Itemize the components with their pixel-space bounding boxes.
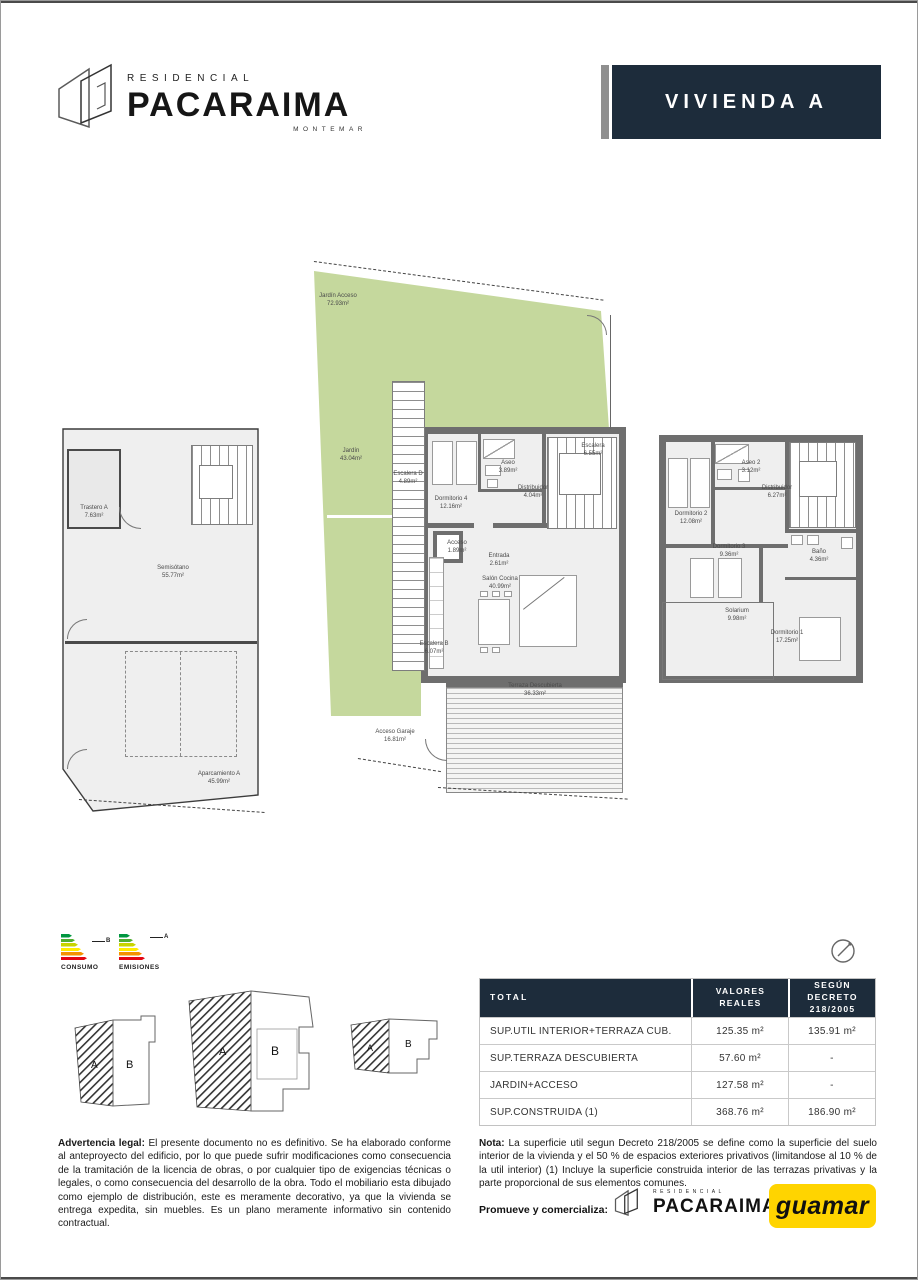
room-label-aseo-2: Aseo 23.12m² bbox=[742, 460, 761, 476]
pacaraima-logo-icon bbox=[613, 1185, 649, 1221]
room-area: 12.08m² bbox=[675, 519, 708, 527]
row-value-decreto: 186.90 m² bbox=[788, 1098, 875, 1125]
row-label: SUP.TERRAZA DESCUBIERTA bbox=[480, 1044, 691, 1071]
furniture-bed bbox=[456, 441, 477, 485]
room-name: Escalera bbox=[581, 443, 604, 451]
brand-residencial: RESIDENCIAL bbox=[127, 73, 367, 84]
room-area: 9.98m² bbox=[725, 616, 749, 624]
energy-bar-c bbox=[119, 943, 136, 947]
room-name: Salón Cocina bbox=[482, 576, 518, 584]
north-arrow-icon bbox=[829, 937, 857, 965]
keyplan-zone-a-label: A bbox=[219, 1046, 227, 1058]
room-label-terraza: Terraza Descubierta36.33m² bbox=[508, 683, 562, 699]
room-area: 4.04m² bbox=[518, 493, 548, 501]
room-name: Terraza Descubierta bbox=[508, 683, 562, 691]
room-name: Distribuidor bbox=[518, 485, 548, 493]
furniture-sofa bbox=[519, 575, 577, 647]
energy-bar-f bbox=[119, 957, 145, 961]
furniture-chair bbox=[480, 647, 488, 653]
room-area: 16.81m² bbox=[375, 737, 414, 745]
room-label-acceso: Acceso1.89m² bbox=[447, 540, 467, 556]
table-row: SUP.UTIL INTERIOR+TERRAZA CUB. 125.35 m²… bbox=[480, 1017, 875, 1044]
row-label: SUP.UTIL INTERIOR+TERRAZA CUB. bbox=[480, 1017, 691, 1044]
parking-divider bbox=[180, 652, 182, 756]
wall bbox=[542, 434, 546, 528]
room-area: 17.25m² bbox=[771, 638, 804, 646]
row-label: JARDIN+ACCESO bbox=[480, 1071, 691, 1098]
room-name: Jardín Acceso bbox=[319, 293, 357, 301]
table-row: SUP.TERRAZA DESCUBIERTA 57.60 m² - bbox=[480, 1044, 875, 1071]
keyplan-basement: A B bbox=[71, 1014, 161, 1114]
room-area: 7.63m² bbox=[80, 513, 107, 521]
legal-disclaimer: Advertencia legal: El presente documento… bbox=[58, 1137, 451, 1231]
table-header-row: TOTAL VALORES REALES SEGÚN DECRETO 218/2… bbox=[480, 979, 875, 1017]
furniture-chair bbox=[504, 591, 512, 597]
energy-chart-title: EMISIONES bbox=[119, 964, 177, 971]
energy-bar-e bbox=[119, 952, 142, 956]
wall bbox=[428, 523, 474, 528]
energy-chart-emisiones: A EMISIONES bbox=[119, 934, 177, 971]
title-accent-bar bbox=[601, 65, 609, 139]
nota-lead: Nota: bbox=[479, 1138, 505, 1149]
keyplan-zone-b-label: B bbox=[126, 1059, 133, 1071]
keyplan-zone-a-label: A bbox=[91, 1060, 98, 1071]
page-bottom-edge bbox=[1, 1277, 917, 1279]
guamar-logo: guamar bbox=[769, 1184, 876, 1228]
room-label-distribuidor: Distribuidor4.04m² bbox=[518, 485, 548, 501]
room-label-escalera-d: Escalera D4.89m² bbox=[393, 471, 422, 487]
energy-bar-c bbox=[61, 943, 78, 947]
brand-montemar: MONTEMAR bbox=[127, 126, 367, 133]
room-name: Acceso Garaje bbox=[375, 729, 414, 737]
room-name: Dormitorio 2 bbox=[675, 511, 708, 519]
room-label-aparcamiento: Aparcamiento A45.99m² bbox=[198, 771, 240, 787]
row-value-decreto: - bbox=[788, 1044, 875, 1071]
furniture-bed bbox=[718, 558, 742, 598]
room-area: 55.77m² bbox=[157, 573, 189, 581]
room-label-dormitorio-3: Dormitorio 39.36m² bbox=[713, 544, 746, 560]
furniture-toilet bbox=[841, 537, 853, 549]
keyplan-ground: A B bbox=[187, 989, 319, 1119]
unit-title: VIVIENDA A bbox=[665, 91, 828, 114]
legal-body: El presente documento no es definitivo. … bbox=[58, 1138, 451, 1229]
wall bbox=[65, 641, 257, 644]
room-area: 12.16m² bbox=[435, 504, 468, 512]
energy-chart-consumo: B CONSUMO bbox=[61, 934, 119, 971]
room-area: 36.33m² bbox=[508, 691, 562, 699]
plot-edge-line bbox=[610, 315, 611, 429]
nota-decreto: Nota: La superficie util segun Decreto 2… bbox=[479, 1137, 877, 1191]
furniture-sink bbox=[791, 535, 803, 545]
brochure-page: RESIDENCIAL PACARAIMA MONTEMAR VIVIENDA … bbox=[0, 0, 918, 1280]
footer-brand-texts: RESIDENCIAL PACARAIMA bbox=[653, 1189, 777, 1218]
energy-bar-d bbox=[61, 948, 81, 952]
terrace-deck bbox=[446, 687, 623, 793]
room-name: Jardín bbox=[340, 448, 362, 456]
room-name: Aparcamiento A bbox=[198, 771, 240, 779]
keyplan-zone-a-label: A bbox=[367, 1043, 373, 1053]
row-value-real: 368.76 m² bbox=[691, 1098, 788, 1125]
room-name: Distribuidor bbox=[762, 485, 792, 493]
basement-stairs-landing bbox=[199, 465, 233, 499]
room-label-escalera: Escalera6.55m² bbox=[581, 443, 604, 459]
room-area: 2.61m² bbox=[488, 561, 509, 569]
brand-name: PACARAIMA bbox=[127, 86, 367, 125]
room-name: Dormitorio 4 bbox=[435, 496, 468, 504]
room-name: Escalera D bbox=[393, 471, 422, 479]
row-value-decreto: 135.91 m² bbox=[788, 1017, 875, 1044]
energy-bar-e bbox=[61, 952, 84, 956]
furniture-chair bbox=[492, 647, 500, 653]
room-label-dormitorio-4: Dormitorio 412.16m² bbox=[435, 496, 468, 512]
upper-stairs-landing bbox=[799, 461, 837, 497]
furniture-chair bbox=[492, 591, 500, 597]
furniture-bed bbox=[690, 558, 714, 598]
brand-block: RESIDENCIAL PACARAIMA MONTEMAR bbox=[127, 73, 367, 133]
furniture-sink bbox=[807, 535, 819, 545]
energy-bar-b bbox=[119, 939, 133, 943]
room-label-trastero: Trastero A7.63m² bbox=[80, 505, 107, 521]
room-label-dormitorio-2: Dormitorio 212.08m² bbox=[675, 511, 708, 527]
table-row: SUP.CONSTRUIDA (1) 368.76 m² 186.90 m² bbox=[480, 1098, 875, 1125]
room-label-aseo: Aseo3.89m² bbox=[499, 460, 518, 476]
room-name: Baño bbox=[810, 549, 829, 557]
furniture-bed bbox=[690, 458, 710, 508]
energy-chart-title: CONSUMO bbox=[61, 964, 119, 971]
rating-letter: B bbox=[106, 938, 110, 944]
room-area: 6.07m² bbox=[419, 649, 448, 657]
room-area: 1.89m² bbox=[447, 548, 467, 556]
room-name: Aseo 2 bbox=[742, 460, 761, 468]
energy-rating-pointer: B bbox=[92, 938, 110, 944]
row-value-decreto: - bbox=[788, 1071, 875, 1098]
room-name: Entrada bbox=[488, 553, 509, 561]
room-area: 40.99m² bbox=[482, 584, 518, 592]
legal-lead: Advertencia legal: bbox=[58, 1138, 145, 1149]
solarium-deck bbox=[662, 602, 774, 680]
table-header-total: TOTAL bbox=[480, 979, 691, 1017]
garage-door-arc bbox=[425, 739, 447, 761]
furniture-bed bbox=[432, 441, 453, 485]
room-label-bano: Baño4.36m² bbox=[810, 549, 829, 565]
furniture-shower bbox=[483, 439, 515, 459]
table-header-valores-reales: VALORES REALES bbox=[691, 979, 788, 1017]
keyplan-upper: A B bbox=[349, 1017, 443, 1077]
garage-access-dashed bbox=[358, 758, 441, 772]
footer-brand-name: PACARAIMA bbox=[653, 1196, 777, 1218]
keyplan-zone-b-label: B bbox=[271, 1044, 279, 1058]
wall bbox=[759, 544, 763, 602]
table-header-segun-decreto: SEGÚN DECRETO 218/2005 bbox=[788, 979, 875, 1017]
furniture-dining-table bbox=[478, 599, 510, 645]
room-area: 4.36m² bbox=[810, 557, 829, 565]
room-name: Aseo bbox=[499, 460, 518, 468]
room-name: Acceso bbox=[447, 540, 467, 548]
energy-bar-b bbox=[61, 939, 75, 943]
room-name: Dormitorio 1 bbox=[771, 630, 804, 638]
wall bbox=[785, 529, 863, 533]
pointer-line bbox=[92, 941, 105, 942]
unit-title-box: VIVIENDA A bbox=[612, 65, 881, 139]
page-top-edge bbox=[1, 1, 917, 3]
stairs-landing bbox=[559, 453, 601, 495]
room-label-distribuidor-upper: Distribuidor6.27m² bbox=[762, 485, 792, 501]
row-value-real: 125.35 m² bbox=[691, 1017, 788, 1044]
room-name: Trastero A bbox=[80, 505, 107, 513]
room-label-dormitorio-1: Dormitorio 117.25m² bbox=[771, 630, 804, 646]
wall bbox=[785, 577, 863, 580]
wall bbox=[493, 523, 547, 528]
furniture-chair bbox=[480, 591, 488, 597]
room-area: 72.93m² bbox=[319, 301, 357, 309]
row-value-real: 127.58 m² bbox=[691, 1071, 788, 1098]
room-area: 3.89m² bbox=[499, 468, 518, 476]
energy-bar-d bbox=[119, 948, 139, 952]
keyplan-zone-b-label: B bbox=[405, 1039, 412, 1050]
energy-rating-pointer: A bbox=[150, 934, 168, 940]
energy-bar-f bbox=[61, 957, 87, 961]
room-name: Dormitorio 3 bbox=[713, 544, 746, 552]
promueve-label: Promueve y comercializa: bbox=[479, 1204, 608, 1216]
room-label-solarium: Solarium9.98m² bbox=[725, 608, 749, 624]
room-area: 45.99m² bbox=[198, 779, 240, 787]
furniture-bed bbox=[799, 617, 841, 661]
gate-door-arc bbox=[587, 315, 607, 335]
room-label-escalera-b: Escalera B6.07m² bbox=[419, 641, 448, 657]
footer-brand-residencial: RESIDENCIAL bbox=[653, 1189, 777, 1195]
row-value-real: 57.60 m² bbox=[691, 1044, 788, 1071]
room-area: 3.12m² bbox=[742, 468, 761, 476]
areas-table: TOTAL VALORES REALES SEGÚN DECRETO 218/2… bbox=[479, 978, 876, 1126]
room-label-salon-cocina: Salón Cocina40.99m² bbox=[482, 576, 518, 592]
room-area: 4.89m² bbox=[393, 479, 422, 487]
footer-pacaraima-logo: RESIDENCIAL PACARAIMA bbox=[613, 1185, 777, 1221]
energy-bar-a bbox=[61, 934, 72, 938]
room-name: Semisótano bbox=[157, 565, 189, 573]
energy-bar-a bbox=[119, 934, 130, 938]
pointer-line bbox=[150, 937, 163, 938]
furniture-sink bbox=[717, 469, 732, 480]
room-area: 6.27m² bbox=[762, 493, 792, 501]
room-label-entrada: Entrada2.61m² bbox=[488, 553, 509, 569]
room-label-jardin-acceso: Jardín Acceso72.93m² bbox=[319, 293, 357, 309]
row-label: SUP.CONSTRUIDA (1) bbox=[480, 1098, 691, 1125]
room-label-semisotano: Semisótano55.77m² bbox=[157, 565, 189, 581]
guamar-logo-text: guamar bbox=[776, 1192, 869, 1221]
rating-letter: A bbox=[164, 934, 168, 940]
room-area: 6.55m² bbox=[581, 451, 604, 459]
room-area: 9.36m² bbox=[713, 552, 746, 560]
room-name: Escalera B bbox=[419, 641, 448, 649]
wall bbox=[478, 434, 481, 492]
table-row: JARDIN+ACCESO 127.58 m² - bbox=[480, 1071, 875, 1098]
room-name: Solarium bbox=[725, 608, 749, 616]
garden-stairs bbox=[392, 381, 425, 671]
room-area: 43.04m² bbox=[340, 456, 362, 464]
nota-body: La superficie util segun Decreto 218/200… bbox=[479, 1138, 877, 1189]
furniture-toilet bbox=[487, 479, 498, 488]
room-label-jardin: Jardín43.04m² bbox=[340, 448, 362, 464]
room-label-acceso-garaje: Acceso Garaje16.81m² bbox=[375, 729, 414, 745]
furniture-bed bbox=[668, 458, 688, 508]
